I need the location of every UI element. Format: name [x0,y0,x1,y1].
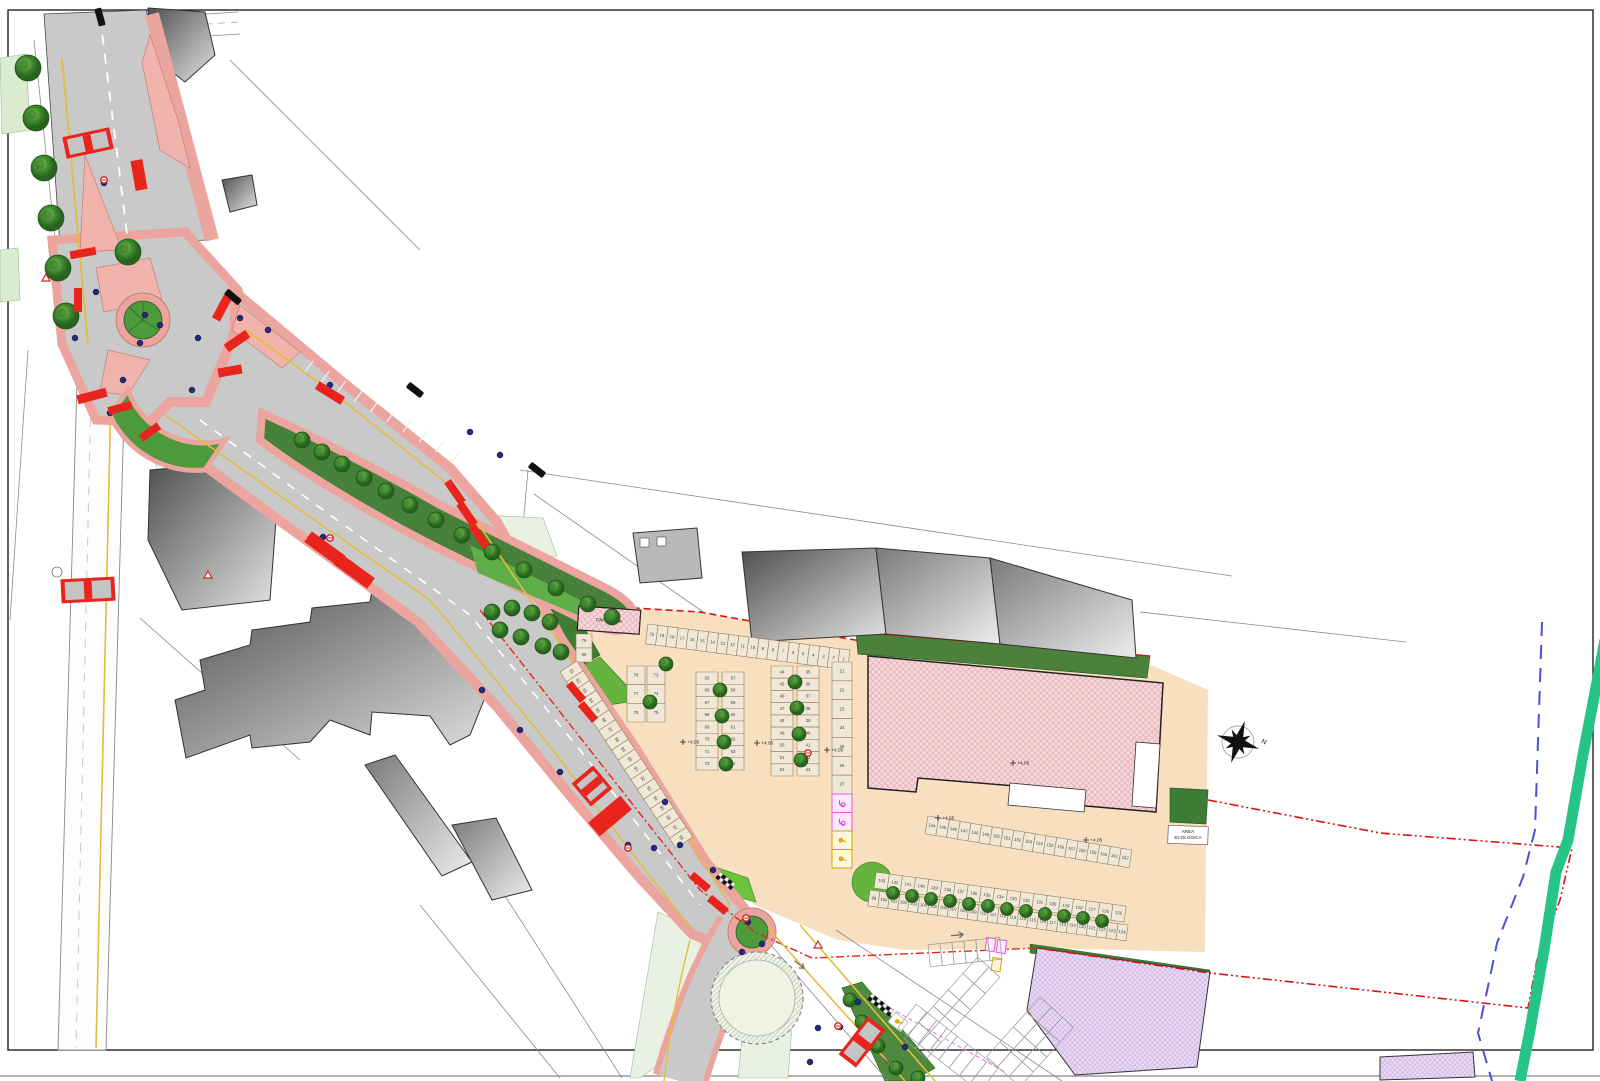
stall-number: 75 [654,710,659,715]
existing-stall [945,1000,971,1026]
stall-number: 141 [904,881,912,887]
stall-number: 127 [1088,906,1096,912]
existing-stall [930,1016,956,1042]
building-court [640,538,649,547]
stall-number: 43 [806,767,811,772]
stall-number: 134 [996,894,1004,900]
tree-crown [359,473,365,479]
new-commercial-building [868,656,1163,812]
stall-number: 41 [806,743,811,748]
existing-stall [948,973,974,999]
parcel-lavender [1380,1052,1475,1080]
stall-number: 140 [917,883,925,889]
stall-number: 142 [891,879,899,885]
stall-number: 73 [654,672,659,677]
stall-number: 37 [806,694,811,699]
stall-number: 35 [806,669,811,674]
tree [516,562,532,578]
streetlight-dot [855,999,861,1005]
grass-patch [0,248,20,302]
tree [788,675,802,689]
tree [1058,910,1071,923]
tree [15,55,41,81]
existing-stall [959,983,985,1009]
tree [31,155,57,181]
tree [944,895,957,908]
stall-number: 69 [705,724,710,729]
tree [504,600,520,616]
tree [580,596,596,612]
streetlight-dot [137,340,143,346]
elevation-label: +4.05 [1091,838,1103,843]
area-ecologica-line2: ECOLOGICA [1174,835,1202,840]
stall-number: 138 [944,887,952,893]
area-ecologica: AREA ECOLOGICA [1168,825,1209,844]
tree-crown [1098,917,1103,922]
stall-number: 63 [731,749,736,754]
stall-number: 66 [705,688,710,693]
tree-crown [1060,912,1065,917]
stall-number: 67 [705,700,710,705]
tree [982,900,995,913]
stall-number: 57 [731,675,736,680]
tree [719,757,733,771]
building [222,175,257,212]
streetlight-dot [497,452,503,458]
tree [843,993,857,1007]
tree-crown [58,308,67,317]
stall-number: 68 [705,712,710,717]
service-icon [839,857,843,861]
stall-number: 38 [806,706,811,711]
tree [1020,905,1033,918]
tree [38,205,64,231]
building [365,755,472,876]
streetlight-dot [72,335,78,341]
site-plan-canvas: CAPOLINEA AREA ECOLOGICA N 2019181716151… [0,0,1600,1081]
streetlight-dot [157,322,163,328]
tree-crown [538,641,544,647]
tree-crown [50,260,59,269]
elevation-label: +4.05 [688,740,700,745]
existing-stall [1009,1062,1034,1081]
tree-crown [607,612,613,618]
building-notch [1132,742,1160,808]
stall-number: 133 [1009,896,1017,902]
tree-crown [984,902,989,907]
streetlight-dot [93,289,99,295]
tree-crown [381,486,387,492]
tree-crown [431,515,437,521]
stall-number: 143 [878,878,886,884]
tree-crown [36,160,45,169]
tree [1096,915,1109,928]
tree-crown [891,1064,896,1069]
stall-number: 132 [1023,897,1031,903]
crossing-band [84,581,93,599]
stall-number: 58 [731,688,736,693]
bus-sign-bar [528,462,546,479]
tree-crown [457,530,463,536]
pedestrian-crossing [60,577,115,604]
tree-crown [556,647,562,653]
stall-number: 72 [705,761,710,766]
green-block-area-ecologica [1170,788,1208,824]
tree-crown [337,459,343,465]
tree-crown [715,686,720,691]
stall-number: 117 [1049,920,1057,926]
streetlight-dot [467,429,473,435]
tree-crown [792,704,797,709]
streetlight-dot [651,845,657,851]
tree-crown [913,1074,918,1079]
streetlight-dot [237,315,243,321]
stall-number: 136 [970,890,978,896]
bus-sign-bar [406,382,424,399]
tree-crown [551,583,557,589]
roundabout-north [116,293,170,347]
stall-number: 24 [840,725,845,730]
stall-number: 130 [1049,901,1057,907]
streetlight-dot [517,727,523,733]
tree [713,683,727,697]
tree-crown [889,889,894,894]
tree-crown [645,698,650,703]
elevation-label: +4.05 [1018,761,1030,766]
tree [314,444,330,460]
tree [542,614,558,630]
stall-number: 74 [654,691,659,696]
tree [1001,903,1014,916]
stall-number: 121 [1088,925,1096,931]
parcel-line [230,60,420,250]
future-roundabout-inner [719,960,795,1036]
existing-stall [933,990,959,1016]
streetlight-dot [902,1044,908,1050]
parcel-line [1140,612,1406,642]
tree-crown [661,660,666,665]
tree-crown [946,897,951,902]
tree-crown [1079,914,1084,919]
stall-number: 52 [780,767,785,772]
parcel-line [420,868,622,1078]
tree-crown [405,500,411,506]
streetlight-dot [739,949,745,955]
service-icon [839,838,843,842]
stall-number: 51 [780,755,785,760]
tree [792,727,806,741]
stall-number: 77 [634,691,639,696]
tree-crown [20,60,29,69]
stall-number: 124 [1118,929,1126,935]
tree [889,1061,903,1075]
tree [548,580,564,596]
stall-number: 59 [731,700,736,705]
tree [906,890,919,903]
stall-number: 71 [705,749,710,754]
parking-tick [436,441,444,452]
streetlight-dot [195,335,201,341]
elevation-label: +4.05 [762,741,774,746]
lavender-parcels [1027,948,1475,1080]
tree-crown [527,608,533,614]
stall-number: 70 [705,737,710,742]
tree-crown [487,607,493,613]
tree-crown [908,892,913,897]
elevation-label: +4.05 [832,748,844,753]
building-court [657,537,666,546]
stall-number: 47 [780,706,785,711]
stall-number: 62 [731,737,736,742]
tree [454,527,470,543]
tree [513,629,529,645]
stall-number: 22 [840,687,845,692]
stall-number: 125 [1115,910,1123,916]
streetlight-dot [677,842,683,848]
stall-number: 100 [880,897,888,903]
area-ecologica-line1: AREA [1182,829,1195,834]
tree [115,239,141,265]
elevation-label: +4.05 [943,816,955,821]
tree-crown [1003,905,1008,910]
compass-north-letter: N [1260,738,1268,747]
existing-stall [998,1052,1023,1077]
streetlight-dot [142,312,148,318]
tree [790,701,804,715]
stall-number: 115 [1029,917,1037,923]
tree [1077,912,1090,925]
streetlight-dot [189,387,195,393]
tree-crown [845,996,850,1001]
streetlight-dot [120,377,126,383]
tree [402,497,418,513]
warehouse [742,548,886,642]
existing-stall [919,1006,945,1032]
stall-number: 39 [806,718,811,723]
stall-number: 126 [1101,908,1109,914]
tree-crown [721,760,726,765]
compass-star-diag [1219,723,1257,761]
tree-crown [43,210,52,219]
tree [887,887,900,900]
tree-crown [583,599,589,605]
stall-number: 113 [1009,914,1017,920]
building [633,528,702,583]
tree-crown [965,900,970,905]
stall-number: 123 [1108,928,1116,934]
tree-crown [507,603,513,609]
tree [604,609,620,625]
tree [925,893,938,906]
stall-number: 49 [780,730,785,735]
stall-number: 139 [930,885,938,891]
site-plan-drawing: CAPOLINEA AREA ECOLOGICA N 2019181716151… [0,0,1600,1081]
tree [45,255,71,281]
stall-number: 48 [780,718,785,723]
tree [659,657,673,671]
parking-tick [452,451,460,462]
tree [524,605,540,621]
stall-number: 26 [840,763,845,768]
stall-number: 61 [731,724,736,729]
tree-crown [516,632,522,638]
tree-crown [717,712,722,717]
streetlight-dot [710,867,716,873]
stall-number: 44 [780,669,785,674]
tree-crown [120,244,129,253]
tree-crown [1041,910,1046,915]
stall-number: 131 [1036,899,1044,905]
stream-green [1520,640,1600,1081]
south-road [58,344,126,1050]
tree-crown [495,625,501,631]
warehouse [990,558,1136,658]
stall-number: 50 [780,743,785,748]
tree [334,456,350,472]
tree-crown [794,730,799,735]
tree [428,512,444,528]
stall-number: 40 [806,730,811,735]
tree [356,470,372,486]
streetlight-dot [265,327,271,333]
tree-crown [719,738,724,743]
tree [1039,908,1052,921]
tree-crown [487,547,493,553]
streetlight-dot [807,1059,813,1065]
tree-crown [927,895,932,900]
manhole [52,567,62,577]
stall-number: 80 [582,652,587,657]
tree [715,709,729,723]
tree [717,735,731,749]
stall-number: 128 [1075,904,1083,910]
tree [643,695,657,709]
tree [492,622,508,638]
building-small-top [633,528,702,583]
stall-number: 45 [780,681,785,686]
tree-crown [297,435,303,441]
tree-crown [519,565,525,571]
stall-number: 135 [983,892,991,898]
tree-crown [28,110,37,119]
stall-number: 111 [989,911,997,917]
tree [535,638,551,654]
direction-arrow [793,958,806,970]
stall-number: 23 [840,706,845,711]
stall-number: 27 [840,782,845,787]
stall-number: 119 [1069,922,1077,928]
red-marking [74,288,82,312]
streetlight-dot [815,1025,821,1031]
tree [553,644,569,660]
existing-stall [987,1042,1012,1067]
tree-crown [545,617,551,623]
stall-number: 65 [705,675,710,680]
stall-number: 21 [840,669,845,674]
tree [484,604,500,620]
stall-number: 36 [806,681,811,686]
tree-crown [317,447,323,453]
tree [294,432,310,448]
tree-crown [796,756,801,761]
warehouse [876,548,1000,644]
parking-stall [985,938,996,952]
tree [963,898,976,911]
stall-number: 129 [1062,903,1070,909]
tree-crown [790,678,795,683]
compass-rose: N [1210,714,1271,771]
stall-number: 137 [957,888,965,894]
streetlight-dot [557,769,563,775]
stall-number: 76 [634,710,639,715]
streetlight-dot [662,799,668,805]
stall-number: 79 [582,638,587,643]
tree-crown [1022,907,1027,912]
stall-number: 60 [731,712,736,717]
stall-number: 46 [780,694,785,699]
stall-number: 78 [634,672,639,677]
tree [378,483,394,499]
tree [23,105,49,131]
streetlight-dot [479,687,485,693]
streetlight-dot [759,941,765,947]
tree-crown [857,1018,862,1023]
